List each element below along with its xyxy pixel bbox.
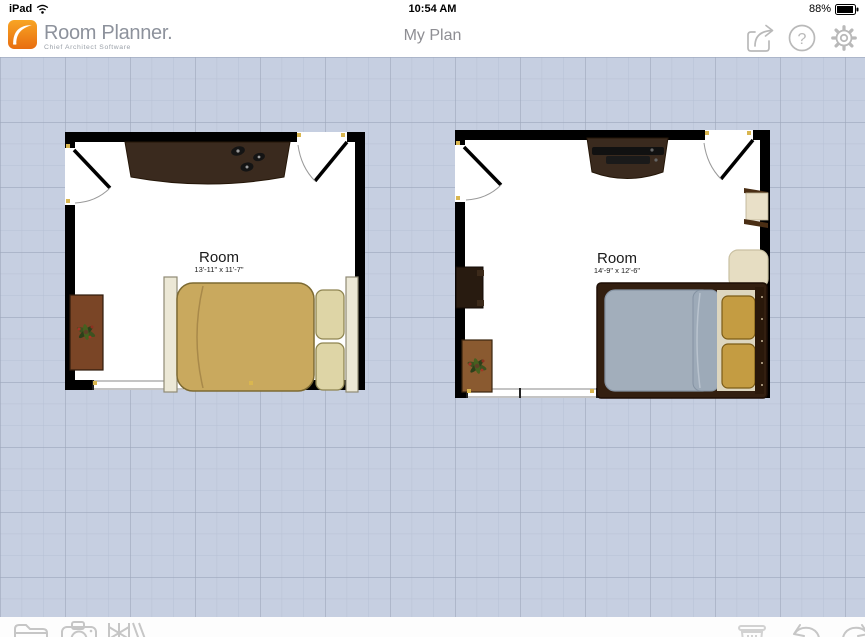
app-subtitle: Chief Architect Software [44,44,172,51]
floor-plan-1[interactable]: Room 13'-11" x 11'-7" [65,132,365,392]
clock: 10:54 AM [0,3,865,15]
bed[interactable] [164,277,358,392]
bed[interactable] [597,283,767,398]
room-label[interactable]: Room [199,249,239,266]
media-dresser[interactable] [587,138,668,179]
room-planner-app: iPad 10:54 AM 88% [0,0,865,637]
page-title: My Plan [0,27,865,45]
settings-icon[interactable] [829,23,859,53]
room-label[interactable]: Room [597,250,637,267]
share-icon[interactable] [745,23,775,53]
plan-canvas[interactable]: Room 13'-11" x 11'-7" [0,57,865,637]
undo-icon[interactable] [788,619,824,637]
header: Room Planner. Chief Architect Software M… [0,20,865,57]
status-bar: iPad 10:54 AM 88% [0,0,865,20]
redo-icon[interactable] [838,619,865,637]
help-icon[interactable]: ? [787,23,817,53]
side-table[interactable] [70,295,103,370]
trash-icon[interactable] [735,619,769,637]
bottom-toolbar [0,617,865,637]
floor-plan-2[interactable]: Room 14'-9" x 12'-6" [455,130,770,398]
camera-icon[interactable] [60,619,98,637]
battery-icon [835,4,859,15]
dresser[interactable] [456,267,484,308]
room-dimensions: 14'-9" x 12'-6" [594,266,640,275]
library-icon[interactable] [105,619,147,637]
svg-text:?: ? [798,31,807,48]
folder-icon[interactable] [12,619,50,637]
dresser[interactable] [125,142,290,184]
nightstand[interactable] [462,340,492,392]
room-dimensions: 13'-11" x 11'-7" [194,265,244,274]
battery-percent: 88% [809,3,831,15]
